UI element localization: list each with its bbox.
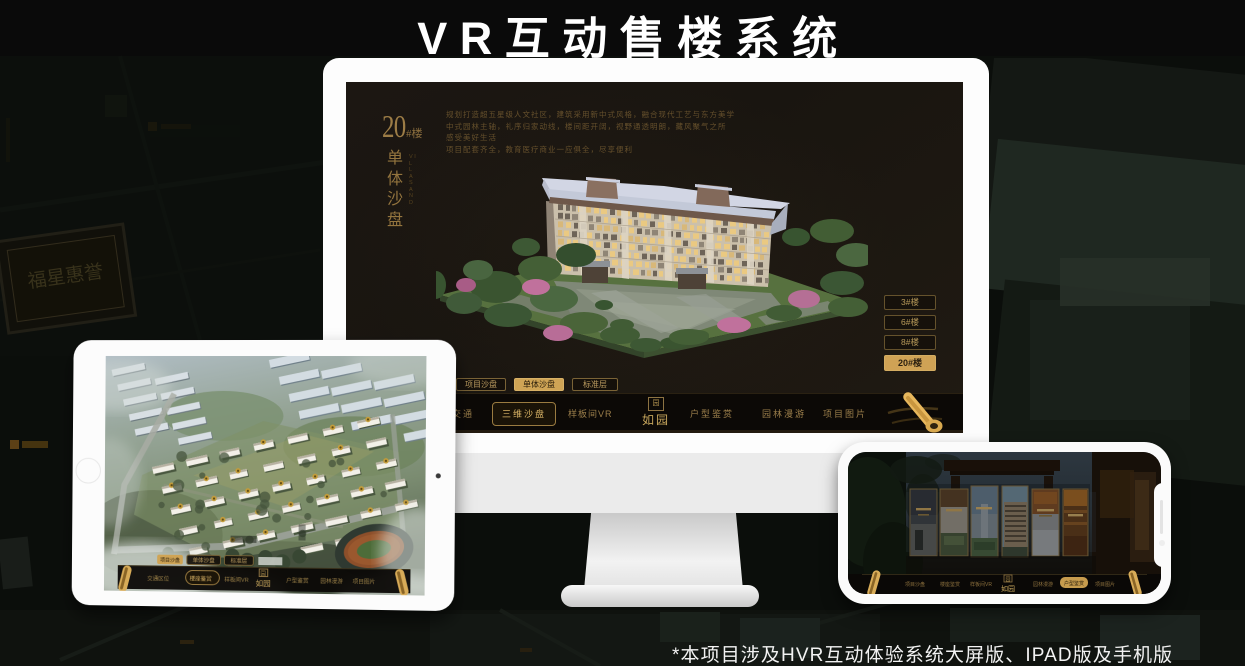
svg-text:项目沙盘: 项目沙盘 — [905, 581, 925, 588]
svg-text:如园: 如园 — [1001, 584, 1015, 593]
svg-text:如园: 如园 — [256, 578, 271, 588]
svg-text:样板间VR: 样板间VR — [970, 581, 992, 588]
svg-text:项目图片: 项目图片 — [1095, 581, 1115, 588]
svg-text:标准层: 标准层 — [231, 557, 248, 565]
svg-text:楼座鉴赏: 楼座鉴赏 — [940, 581, 960, 588]
svg-text:园: 园 — [260, 570, 266, 577]
svg-text:户型鉴赏: 户型鉴赏 — [1064, 580, 1084, 587]
svg-text:园: 园 — [1005, 577, 1010, 583]
svg-text:园林漫游: 园林漫游 — [1033, 581, 1053, 588]
